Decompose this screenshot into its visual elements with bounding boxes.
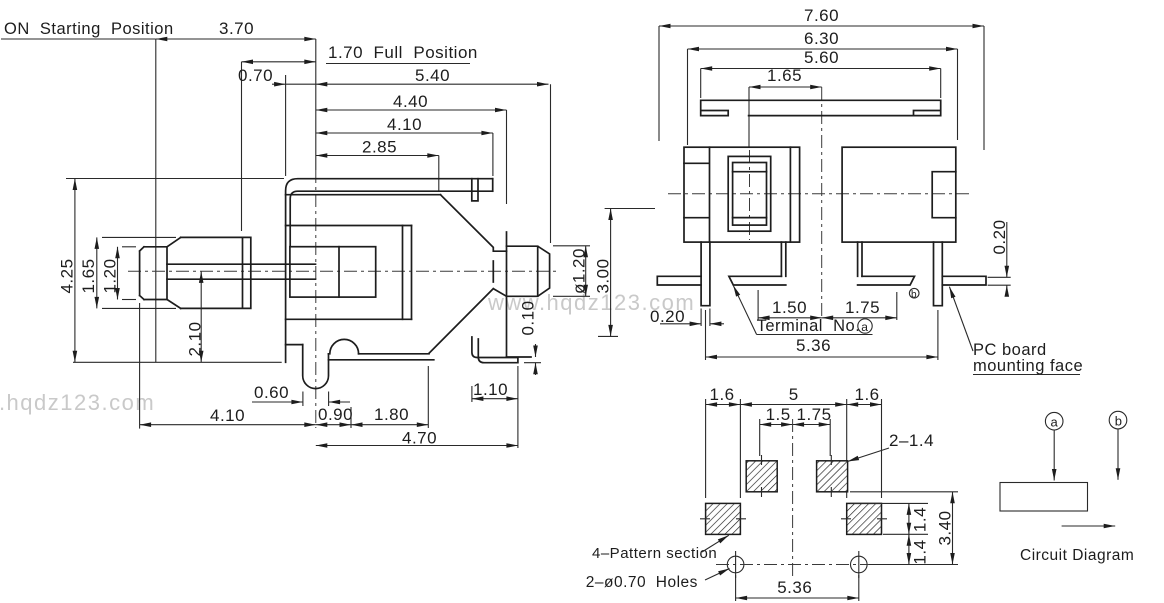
svg-text:3.70: 3.70 (219, 19, 254, 38)
svg-text:4.70: 4.70 (402, 429, 437, 448)
svg-text:5.36: 5.36 (777, 578, 812, 597)
svg-text:5.36: 5.36 (796, 336, 831, 355)
svg-text:5.40: 5.40 (415, 66, 450, 85)
svg-text:0.60: 0.60 (254, 383, 289, 402)
svg-text:0.20: 0.20 (990, 219, 1009, 254)
svg-text:4.10: 4.10 (387, 115, 422, 134)
svg-text:5: 5 (789, 385, 799, 404)
svg-text:1.10: 1.10 (473, 380, 508, 399)
svg-text:1.75: 1.75 (797, 405, 832, 424)
svg-text:3.00: 3.00 (594, 258, 613, 293)
svg-text:6.30: 6.30 (804, 29, 839, 48)
svg-text:1.20: 1.20 (101, 258, 120, 293)
svg-text:1.6: 1.6 (710, 385, 735, 404)
svg-text:4–Pattern section: 4–Pattern section (592, 545, 717, 562)
svg-text:1.65: 1.65 (79, 258, 98, 293)
svg-text:ON Starting Position: ON Starting Position (4, 20, 174, 38)
svg-text:1.4: 1.4 (911, 539, 930, 564)
svg-text:2–1.4: 2–1.4 (889, 431, 934, 450)
svg-text:3.40: 3.40 (936, 510, 955, 545)
svg-text:a: a (861, 320, 868, 334)
svg-text:0.90: 0.90 (318, 405, 353, 424)
svg-text:2–ø0.70 Holes: 2–ø0.70 Holes (586, 574, 698, 591)
svg-text:1.70 Full Position: 1.70 Full Position (328, 43, 478, 62)
svg-text:a: a (1051, 415, 1059, 430)
svg-text:4.25: 4.25 (58, 258, 77, 293)
svg-text:1.65: 1.65 (767, 66, 802, 85)
svg-text:7.60: 7.60 (804, 6, 839, 25)
svg-text:0.10: 0.10 (519, 300, 538, 335)
svg-text:0.70: 0.70 (238, 66, 273, 85)
svg-text:1.75: 1.75 (845, 298, 880, 317)
svg-text:b: b (911, 290, 917, 301)
svg-text:1.4: 1.4 (911, 507, 930, 532)
svg-text:1.5: 1.5 (766, 405, 791, 424)
svg-text:mounting face: mounting face (973, 357, 1083, 375)
svg-text:0.20: 0.20 (650, 307, 685, 326)
svg-text:1.50: 1.50 (772, 298, 807, 317)
svg-text:5.60: 5.60 (804, 48, 839, 67)
svg-text:4.40: 4.40 (393, 92, 428, 111)
svg-text:b: b (1115, 414, 1122, 429)
svg-text:Circuit Diagram: Circuit Diagram (1020, 547, 1134, 564)
svg-text:1.6: 1.6 (855, 385, 880, 404)
svg-text:2.85: 2.85 (362, 138, 397, 157)
svg-text:www.hqdz123.com: www.hqdz123.com (0, 390, 155, 415)
svg-text:1.80: 1.80 (374, 405, 409, 424)
svg-text:4.10: 4.10 (210, 406, 245, 425)
svg-text:Terminal No.: Terminal No. (757, 317, 861, 335)
